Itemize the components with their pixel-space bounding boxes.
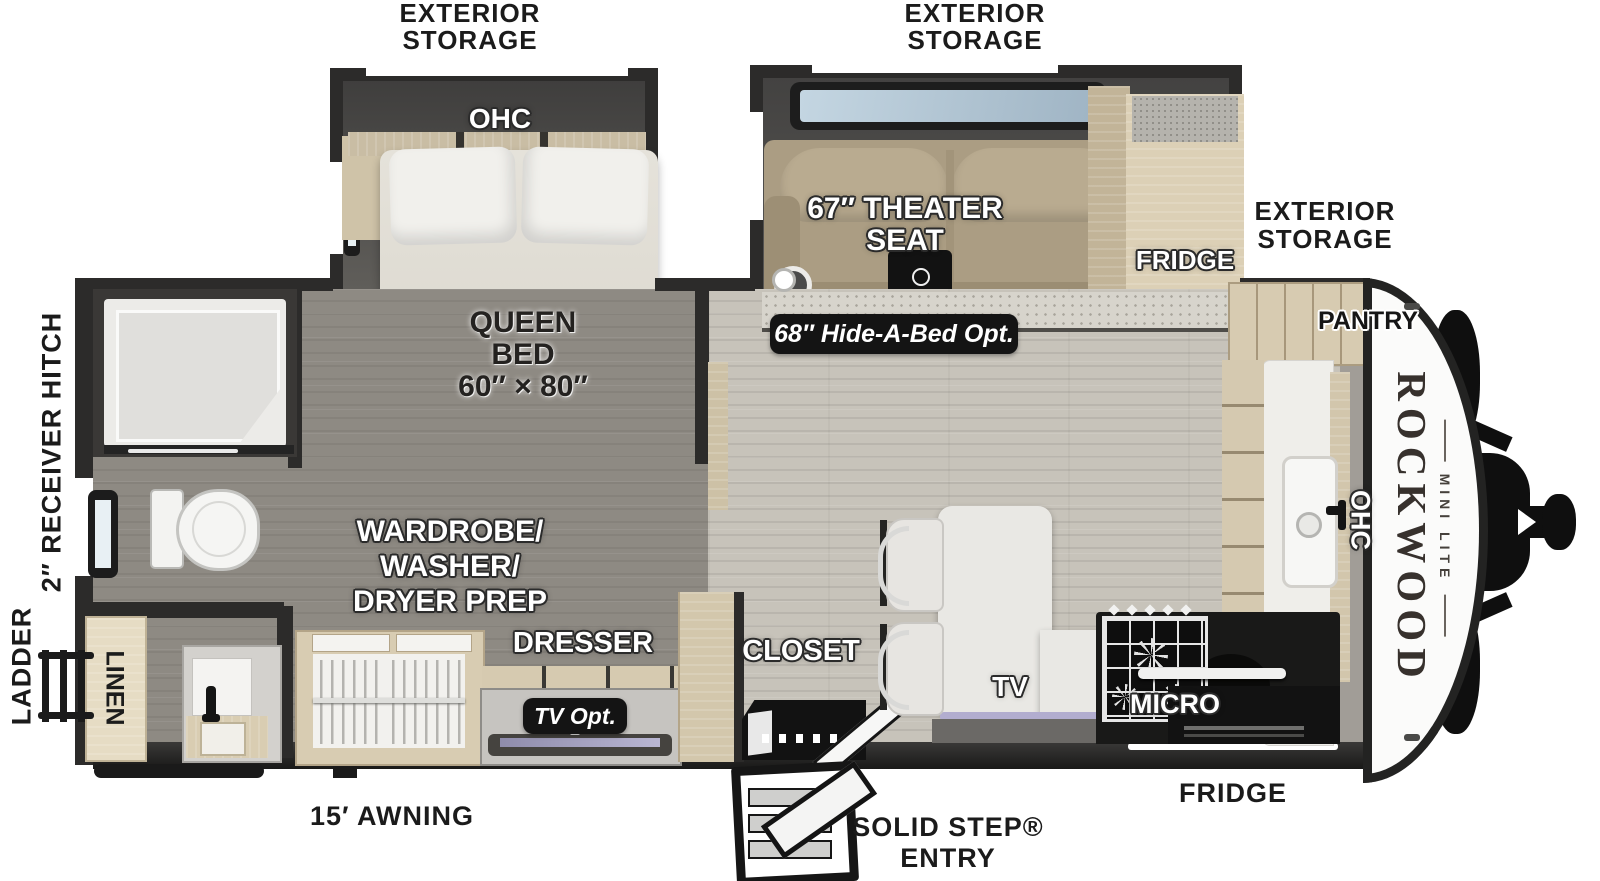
label-ohc-bedroom: OHC (450, 104, 550, 135)
label-line: WARDROBE/ (320, 514, 580, 549)
theater-slide-window-left (750, 112, 763, 220)
label-micro: MICRO (1110, 690, 1240, 720)
dinette-chair (886, 518, 944, 612)
console-button-icon (912, 268, 930, 286)
entry-step-plate (748, 710, 772, 755)
shower-door-chrome (128, 449, 238, 453)
brand-rule (1444, 594, 1446, 636)
brand-rule (1444, 420, 1446, 462)
bed-pillow-right (521, 146, 649, 245)
label-line: BED (423, 339, 623, 371)
front-fridge-vent (1184, 726, 1304, 730)
closet-cabinet (678, 592, 738, 762)
bed-pillow-left (389, 146, 517, 245)
label-pantry: PANTRY (1288, 308, 1448, 336)
label-fridge-front: FRIDGE (1163, 779, 1303, 809)
label-dresser: DRESSER (493, 628, 673, 660)
brand-mini-lite: MINI LITE (1437, 420, 1453, 637)
brand-rockwood: ROCKWOOD (1388, 371, 1436, 684)
label-receiver-hitch: 2″ RECEIVER HITCH (37, 312, 68, 592)
label-line: STORAGE (370, 27, 570, 54)
label-line: 67″ THEATER (785, 193, 1025, 225)
dresser-tv-screen (500, 738, 660, 747)
dresser-drawer-row (482, 666, 678, 690)
label-line: EXTERIOR (875, 0, 1075, 27)
label-fridge-slide: FRIDGE (1115, 246, 1255, 275)
label-theater-seat: 67″ THEATER SEAT (785, 193, 1025, 257)
label-ohc-kitchen: OHC (1345, 490, 1376, 550)
rear-bumper (94, 764, 264, 778)
brand-model-text: MINI LITE (1437, 474, 1453, 583)
label-tv-option: TV Opt. (523, 698, 627, 734)
front-fridge-vent (1184, 734, 1304, 737)
label-exterior-storage-theater: EXTERIOR STORAGE (875, 0, 1075, 54)
burner-fan (1134, 638, 1168, 672)
jack-wheel (1542, 494, 1576, 550)
label-line: EXTERIOR (370, 0, 570, 27)
label-awning: 15′ AWNING (282, 802, 502, 832)
label-exterior-storage-front: EXTERIOR STORAGE (1225, 197, 1425, 253)
label-closet: CLOSET (731, 636, 871, 668)
label-line: EXTERIOR (1225, 197, 1425, 225)
label-line: WASHER/ (320, 549, 580, 584)
label-hide-a-bed-option: 68″ Hide-A-Bed Opt. (770, 314, 1018, 354)
label-line: DRYER PREP (320, 584, 580, 619)
vanity-door (192, 658, 252, 716)
toilet-bowl-inner (192, 501, 246, 557)
bath-window-glass (95, 500, 111, 568)
label-wardrobe-washer-dryer: WARDROBE/ WASHER/ DRYER PREP (320, 514, 580, 619)
label-line: SOLID STEP® (818, 812, 1078, 843)
wardrobe-top-slot (396, 634, 472, 652)
label-line: STORAGE (1225, 225, 1425, 253)
label-line: ENTRY (818, 843, 1078, 874)
ladder-rung (60, 650, 67, 722)
wall-bedroom-living (695, 278, 709, 464)
oven-handle (1138, 668, 1286, 679)
theater-window-glass (800, 90, 1096, 122)
bath-sink-basin (200, 722, 246, 756)
label-line: STORAGE (875, 27, 1075, 54)
island-base (932, 719, 1110, 743)
cap-screw-bottom (1404, 734, 1420, 741)
label-line: QUEEN (423, 307, 623, 339)
bedroom-pocket-door (708, 362, 728, 510)
wardrobe-top-slot (312, 634, 390, 652)
floorplan: EXTERIOR STORAGE EXTERIOR STORAGE EXTERI… (0, 0, 1600, 881)
bedroom-slide-top-window (366, 68, 628, 76)
slide-fridge-top-inset (1132, 96, 1238, 142)
label-queen-bed: QUEEN BED 60″ × 80″ (423, 307, 623, 403)
label-line: 60″ × 80″ (423, 371, 623, 403)
ladder-rung (78, 650, 85, 722)
wardrobe-rod (313, 698, 465, 703)
label-ladder: LADDER (7, 607, 38, 726)
label-tv-island: TV (970, 672, 1050, 703)
sink-drain (1296, 512, 1322, 538)
kitchen-cabinet-faces (1222, 360, 1264, 642)
label-linen: LINEN (100, 651, 129, 726)
theater-slide-top-window (812, 65, 1058, 73)
bath-faucet-head (202, 714, 220, 722)
label-exterior-storage-bedroom: EXTERIOR STORAGE (370, 0, 570, 54)
label-solid-step-entry: SOLID STEP® ENTRY (818, 812, 1078, 874)
dinette-chair (886, 622, 944, 716)
entry-grab-handle (772, 268, 796, 292)
label-line: SEAT (785, 225, 1025, 257)
ladder-rung (42, 650, 49, 722)
